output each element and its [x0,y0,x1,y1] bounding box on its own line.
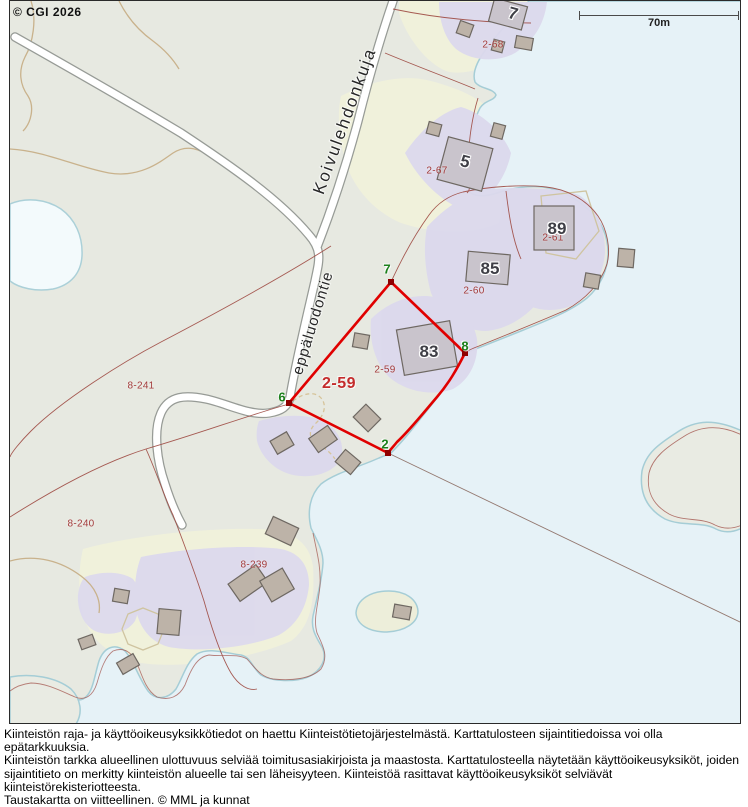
building-label-89: 89 [548,219,567,239]
scale-bar-label: 70m [579,17,739,29]
parcel-label-8-239: 8-239 [240,560,267,571]
highlight-parcel-label: 2-59 [322,375,356,393]
copyright-label: © CGI 2026 [13,5,82,19]
footer-line-2: Kiinteistön tarkka alueellinen ulottuvuu… [4,754,748,767]
parcel-label-2-59-small: 2-59 [374,365,395,376]
boundary-point-label-8: 8 [461,339,468,354]
footer-line-3: sijaintitieto on merkitty kiinteistön al… [4,768,748,794]
building-label-83: 83 [420,342,439,362]
parcel-label-2-68: 2-68 [482,40,503,51]
boundary-point-label-2: 2 [381,437,388,452]
parcel-label-8-240: 8-240 [67,519,94,530]
parcel-label-2-60: 2-60 [463,286,484,297]
scale-bar: 70m [579,11,739,29]
footer-line-4: Taustakartta on viitteellinen. © MML ja … [4,794,748,807]
map-canvas [10,1,740,723]
page: { "map": { "copyright": "© CGI 2026", "s… [0,0,748,779]
scale-bar-line [579,15,739,16]
building-label-85: 85 [481,259,500,279]
boundary-point-label-7: 7 [383,262,390,277]
parcel-label-8-241: 8-241 [127,381,154,392]
map-frame: © CGI 2026 70m Koivulehdonkuja eppäluodo… [9,0,741,724]
parcel-label-2-67: 2-67 [426,166,447,177]
footer: Kiinteistön raja- ja käyttöoikeusyksikkö… [4,728,748,807]
boundary-point-label-6: 6 [278,390,285,405]
footer-line-1: Kiinteistön raja- ja käyttöoikeusyksikkö… [4,728,748,754]
